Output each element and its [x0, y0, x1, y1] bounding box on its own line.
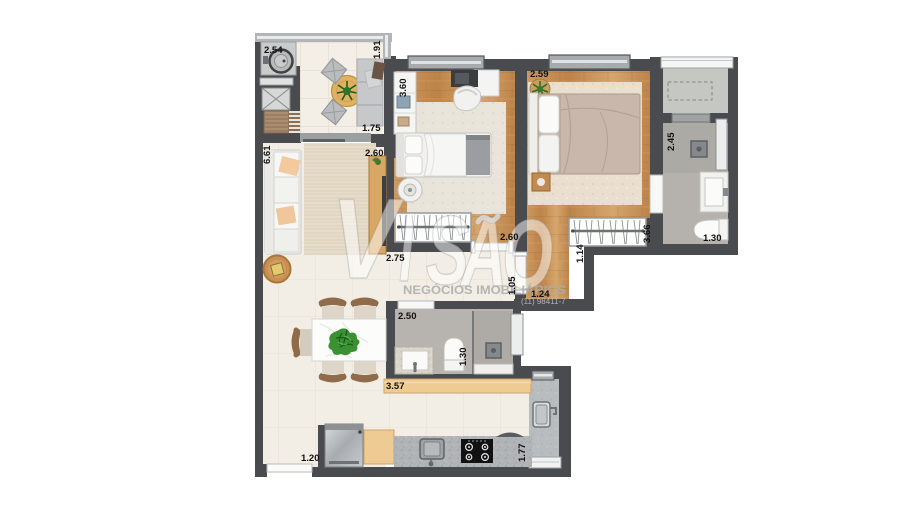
svg-text:2.75: 2.75 [386, 253, 405, 264]
svg-text:2.45: 2.45 [666, 132, 677, 151]
svg-text:3.57: 3.57 [386, 381, 405, 392]
svg-text:1.24: 1.24 [531, 289, 550, 300]
svg-text:1.05: 1.05 [507, 276, 518, 295]
svg-text:3.66: 3.66 [642, 225, 653, 244]
svg-text:1.30: 1.30 [703, 233, 722, 244]
svg-text:3.60: 3.60 [398, 79, 409, 98]
svg-text:2.50: 2.50 [398, 311, 417, 322]
svg-text:1.20: 1.20 [301, 453, 320, 464]
svg-text:2.60: 2.60 [500, 232, 519, 243]
svg-text:1.77: 1.77 [517, 444, 528, 463]
svg-text:6.61: 6.61 [262, 145, 273, 164]
svg-text:2.59: 2.59 [530, 69, 549, 80]
svg-text:2.54: 2.54 [264, 45, 283, 56]
svg-text:1.30: 1.30 [458, 348, 469, 367]
svg-text:2.60: 2.60 [365, 148, 384, 159]
svg-text:1.91: 1.91 [372, 40, 383, 59]
svg-text:1.75: 1.75 [362, 123, 381, 134]
svg-text:1.14: 1.14 [575, 244, 586, 263]
svg-text:V: V [331, 176, 404, 303]
